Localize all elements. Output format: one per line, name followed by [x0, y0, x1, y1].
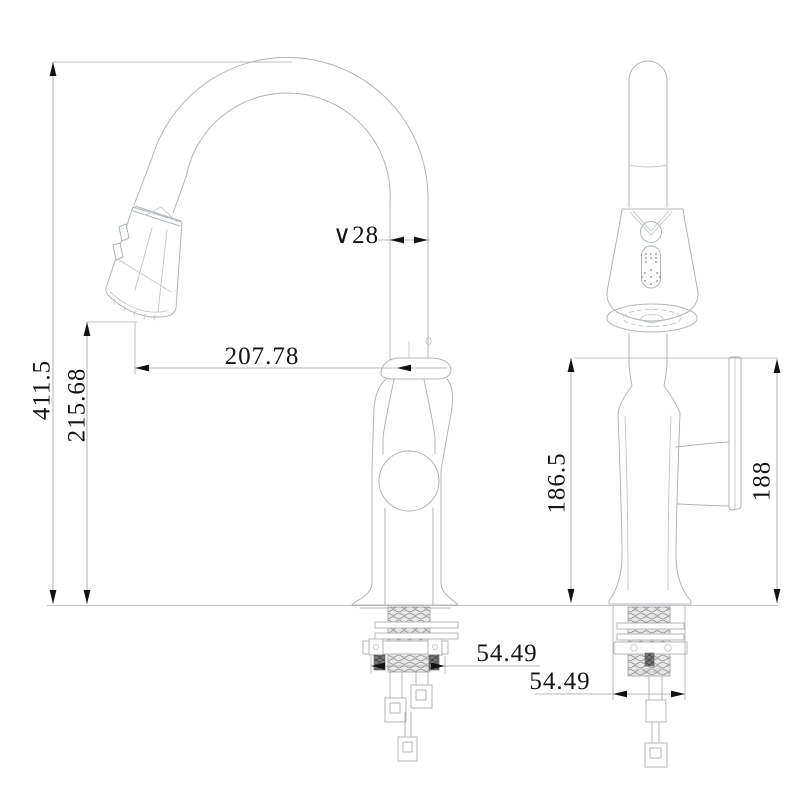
spray-head-side [106, 206, 182, 320]
hose-front-end-fitting [645, 743, 667, 767]
hose-front-fitting [646, 700, 666, 722]
supply-hoses-side [385, 672, 432, 761]
deck-washer-2-side [375, 633, 458, 639]
nut-lug-left [369, 639, 383, 655]
mounting-hardware-side [363, 607, 458, 672]
spray-head-front [607, 209, 698, 332]
body-inner-lines-front [625, 416, 671, 590]
body-side [352, 358, 458, 608]
body-front [609, 386, 691, 604]
dim-spray-tip-height: 215.68 [64, 322, 138, 604]
hose-front-stem [652, 722, 659, 743]
stud-front [645, 653, 654, 666]
dim-spout-diameter: ∨28 [333, 222, 430, 249]
dim-overall-height: 411.5 [29, 62, 293, 604]
mounting-hardware-front [614, 607, 687, 676]
dim-deck-to-spray-label: 186.5 [544, 452, 571, 513]
spray-hose-fitting [398, 737, 417, 761]
mounting-nut-front [614, 642, 687, 654]
tube-behind-head [629, 334, 667, 386]
dim-handle-height-label: 188 [749, 461, 776, 502]
front-view [607, 61, 741, 767]
dim-shank-width-side-label: 54.49 [476, 640, 537, 667]
hose-front-tube [649, 676, 662, 700]
spray-head-side-outline [106, 207, 182, 317]
dim-deck-to-spray: 186.5 [544, 358, 779, 603]
valve-bulge [379, 451, 439, 511]
spout-tube-front [629, 61, 667, 207]
spray-hose-front [645, 676, 667, 767]
shoulder-left [618, 386, 632, 413]
shoulder-right [664, 386, 680, 413]
nut-lug-right [428, 639, 442, 655]
drawing-canvas: 411.5 215.68 207.78 ∨28 [0, 0, 800, 800]
spout-outer-arc [134, 57, 428, 362]
faucet-technical-drawing: 411.5 215.68 207.78 ∨28 [0, 0, 800, 800]
hose-left-tube [390, 672, 402, 698]
body-outer-right [441, 379, 458, 605]
deck-washer-2-front [617, 634, 684, 640]
body-right-front [676, 413, 691, 604]
hose-right-tube [416, 672, 428, 685]
spout-side [134, 57, 431, 366]
neck-ring-side [381, 358, 451, 379]
deck-washer-1-side [375, 622, 458, 628]
dim-spout-diameter-label: ∨28 [333, 222, 379, 249]
side-view [106, 57, 458, 761]
hose-right-fitting [411, 685, 432, 708]
dim-spray-tip-height-label: 215.68 [64, 368, 91, 443]
waterway-columns [385, 508, 433, 604]
dim-handle-height: 188 [749, 359, 781, 603]
body-left-front [609, 413, 622, 604]
waterway-neck-left [383, 379, 394, 454]
waterway-neck-right [424, 379, 435, 454]
hose-left-fitting [385, 698, 406, 722]
dim-overall-height-label: 411.5 [29, 360, 56, 420]
handle-arm [676, 442, 729, 506]
spout-seam [629, 165, 667, 167]
dim-shank-width-front-label: 54.49 [529, 668, 590, 695]
dim-reach-label: 207.78 [225, 343, 300, 370]
deck-washer-1-front [617, 623, 684, 629]
handle-front [676, 357, 741, 510]
